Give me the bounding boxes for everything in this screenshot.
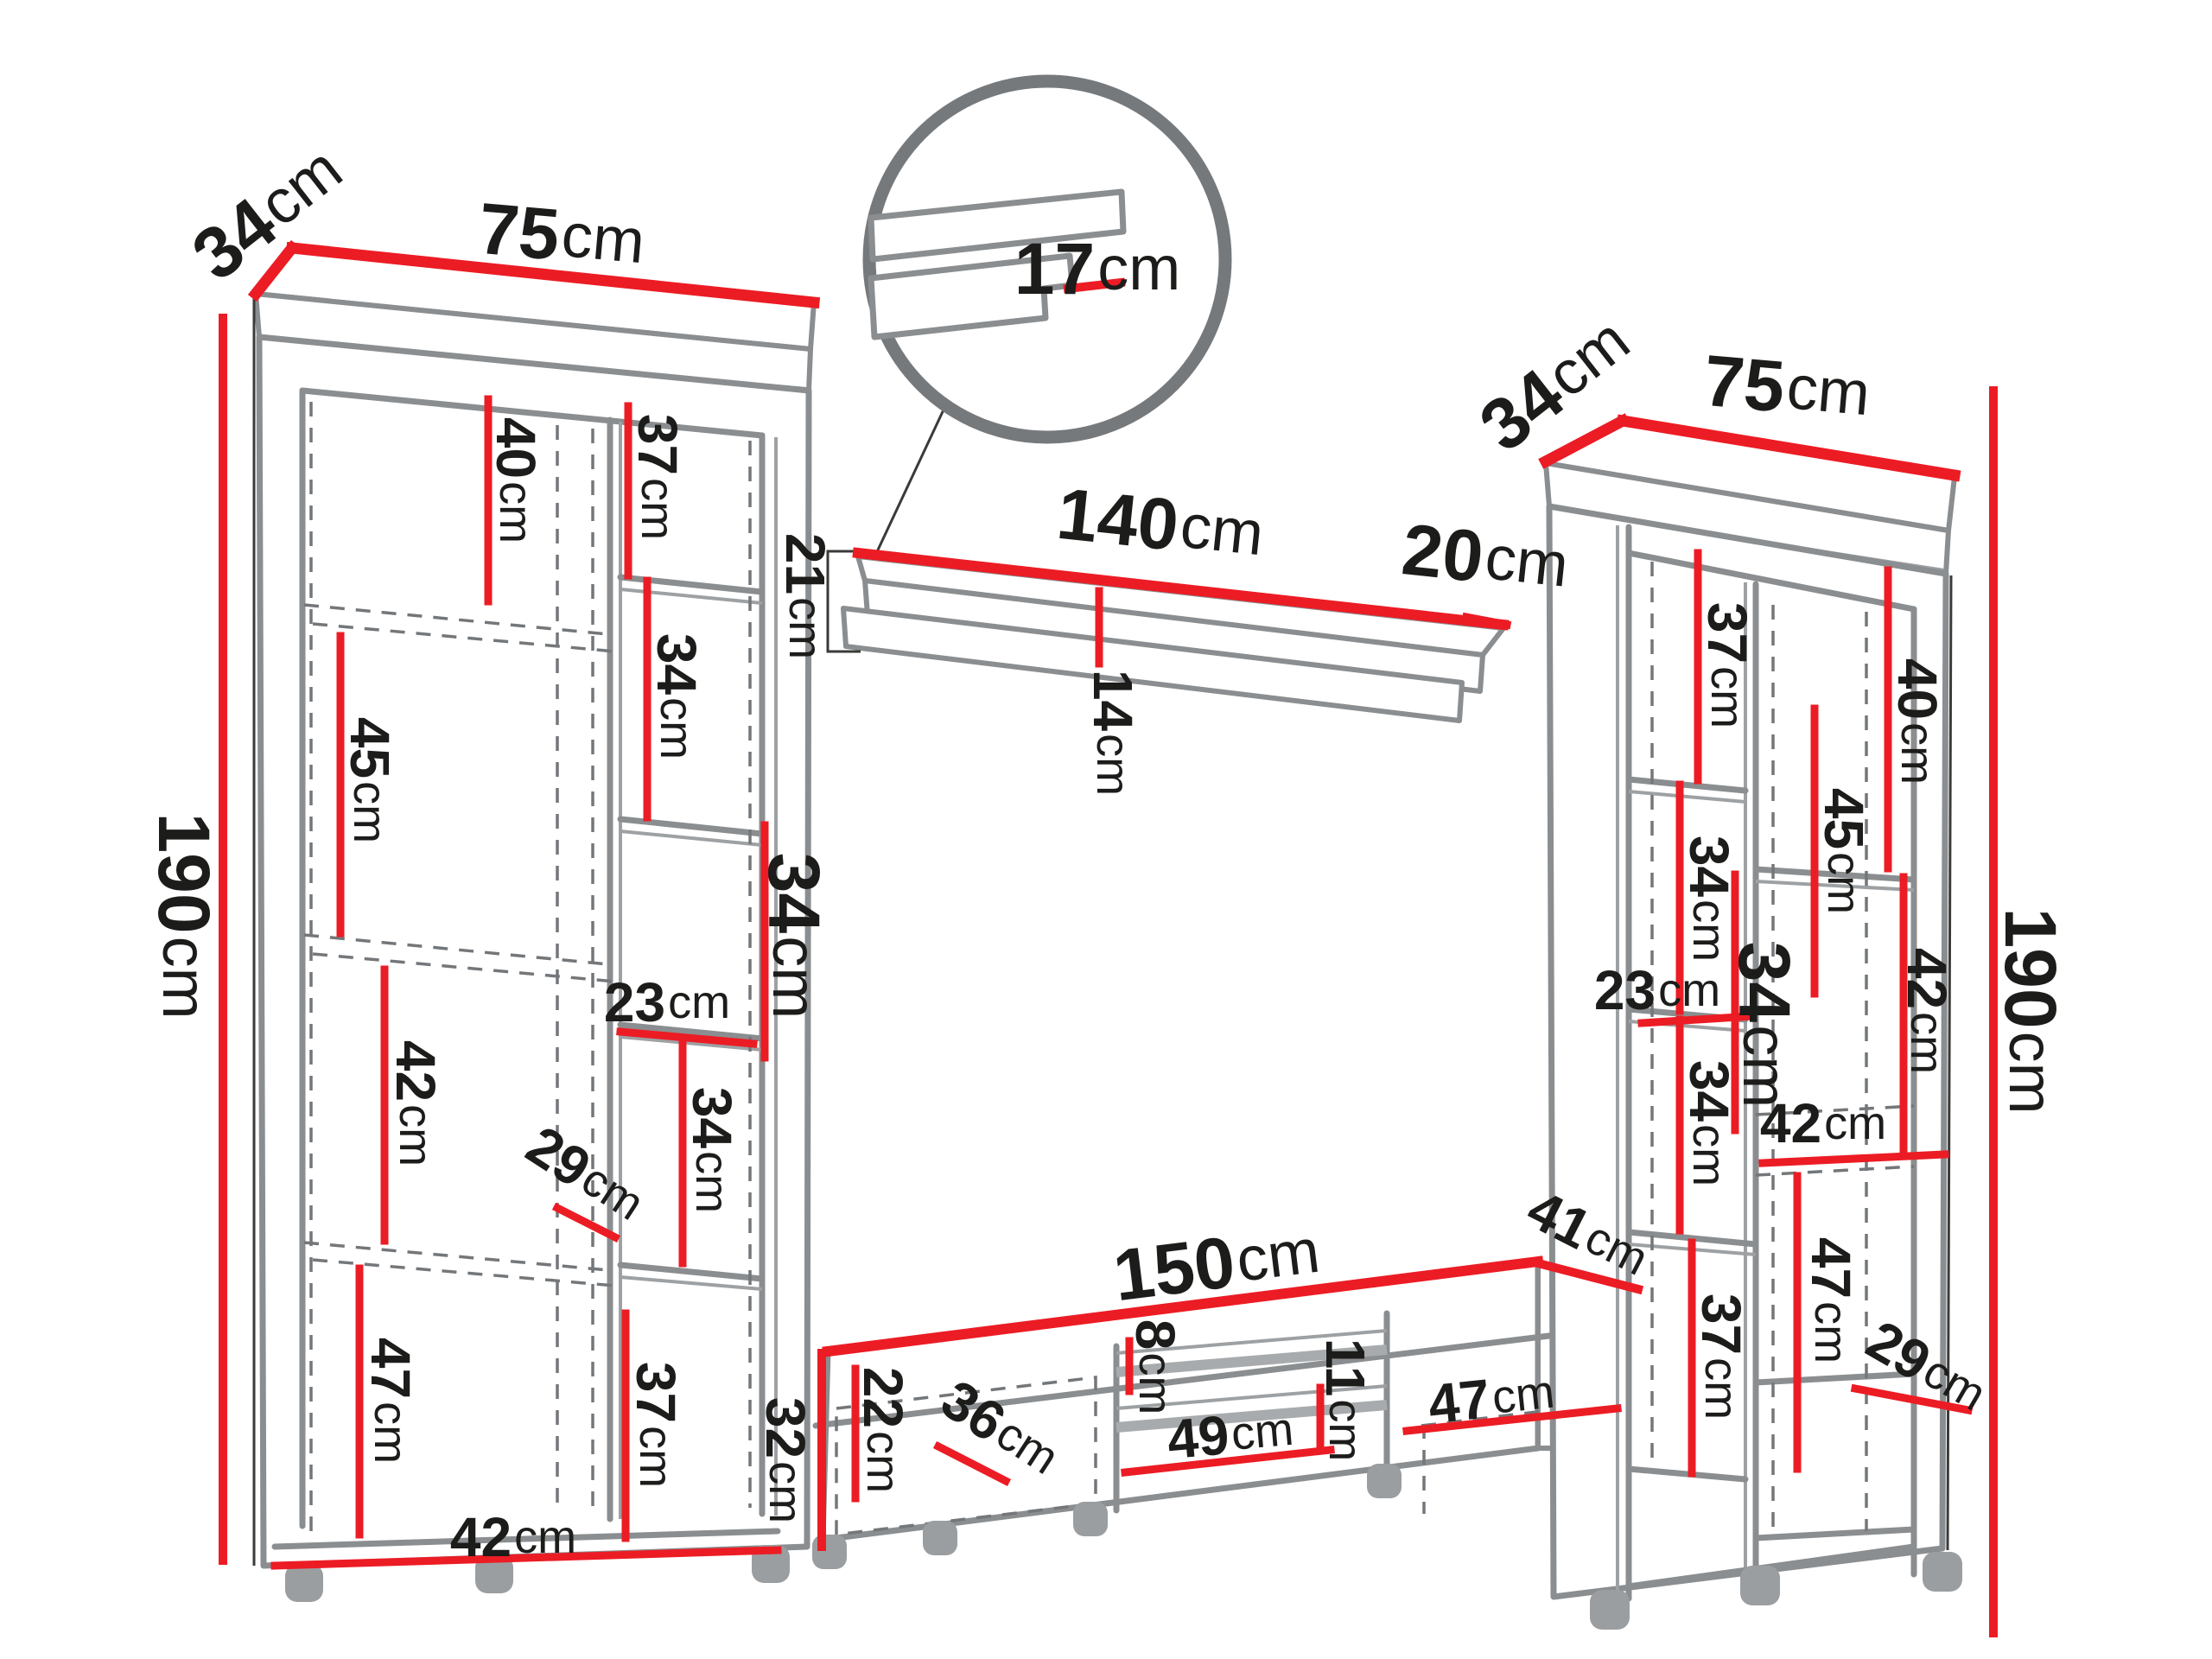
dim-label-tv-stand-niche-11cm: 11cm [1314, 1338, 1376, 1462]
dim-label-tv-stand-niche-8cm: 8cm [1124, 1319, 1186, 1415]
dim-label-wall-shelf-depth-20cm: 20cm [1398, 508, 1572, 607]
dim-label-wall-shelf-width-140cm: 140cm [1053, 473, 1268, 575]
stand-foot [1073, 1502, 1108, 1536]
dim-label-right-cabinet-width-75cm: 75cm [1700, 340, 1873, 435]
cabinet-foot [1923, 1552, 1962, 1592]
dim-label-left-cabinet-width-75cm: 75cm [475, 188, 648, 283]
cabinet-foot [285, 1564, 323, 1602]
stand-foot [923, 1521, 957, 1555]
dim-label-left-cabinet-height-190cm: 190cm [143, 812, 225, 1019]
cabinet-foot [1590, 1590, 1630, 1630]
dim-label-shelf-detail-17cm: 17cm [1014, 228, 1180, 309]
diagram-canvas: 34cm75cm190cm40cm37cm34cm45cm34cm23cm34c… [0, 0, 2212, 1659]
dim-label-left-cabinet-section-34cm: 34cm [753, 853, 835, 1019]
dim-label-wall-shelf-front-height-14cm: 14cm [1082, 670, 1144, 796]
dim-label-right-cabinet-height-190cm: 190cm [1990, 907, 2071, 1114]
furniture-dimension-diagram: 34cm75cm190cm40cm37cm34cm45cm34cm23cm34c… [0, 0, 2212, 1659]
stand-foot [1367, 1464, 1402, 1498]
cabinet-foot [1740, 1566, 1780, 1605]
callout-leader-line [874, 406, 945, 557]
